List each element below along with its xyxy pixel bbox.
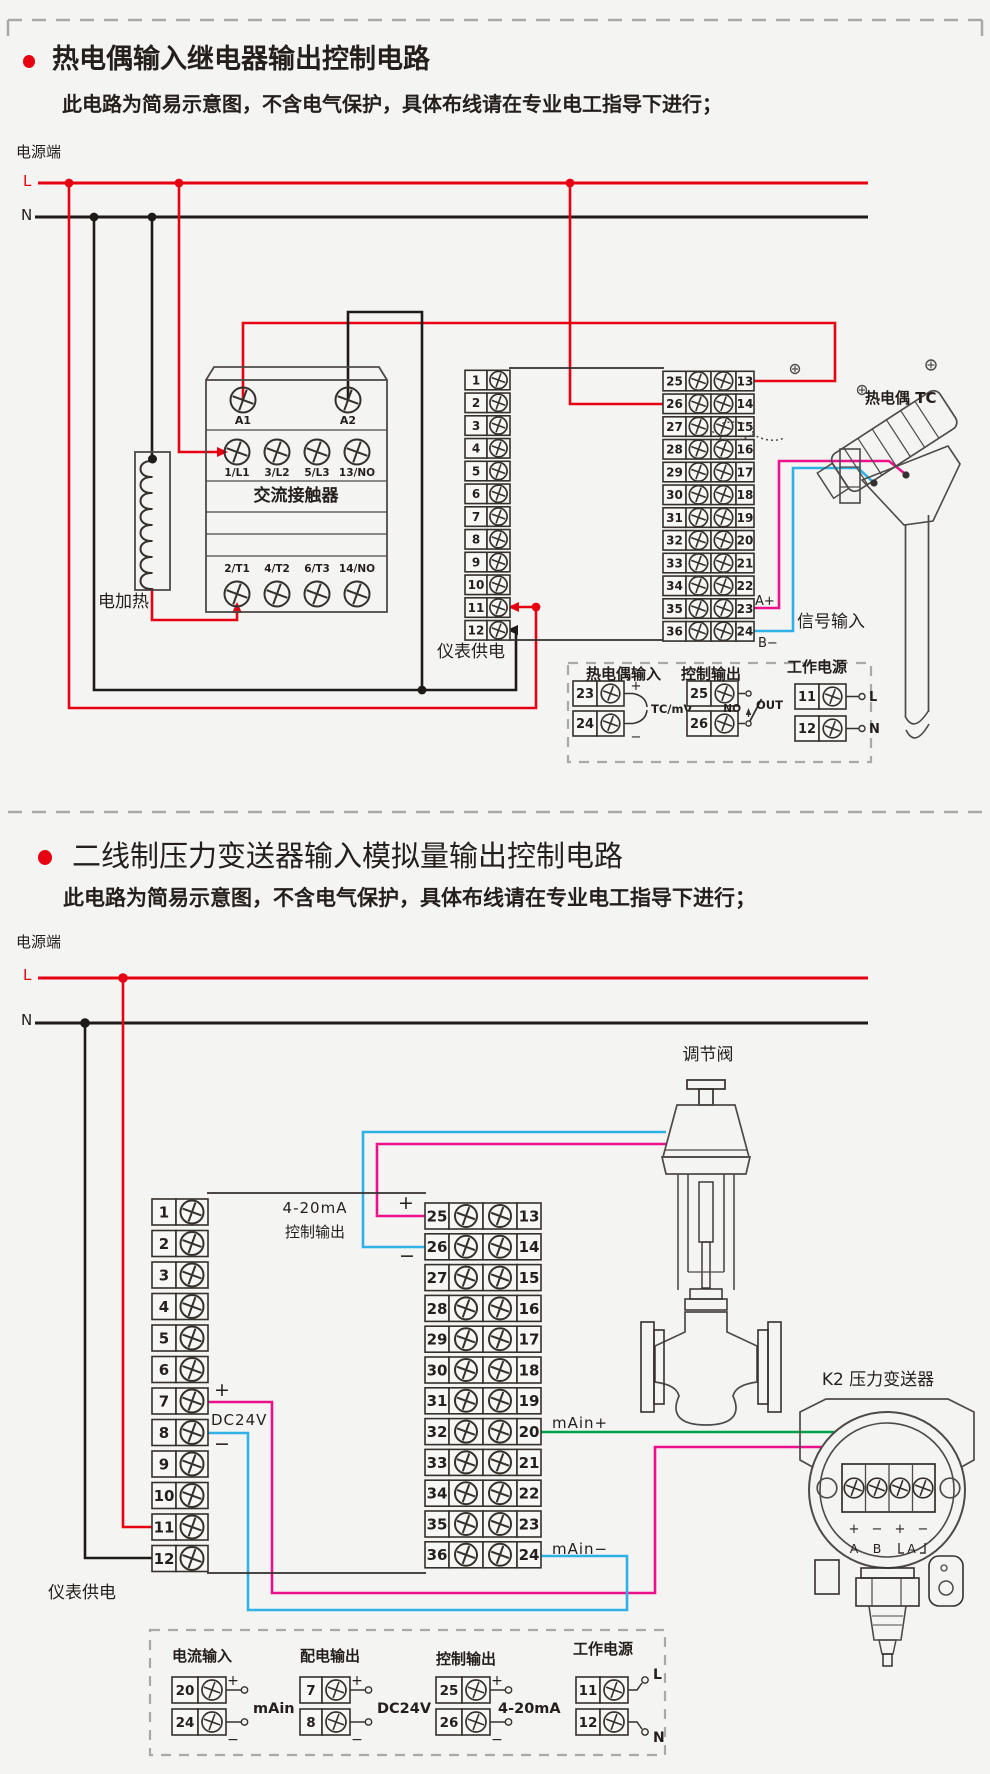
control-output-note1: 4-20mA: [283, 1200, 348, 1217]
svg-text:28: 28: [427, 1300, 448, 1318]
legend2-current-input-header: 电流输入: [172, 1648, 232, 1665]
svg-text:+: +: [227, 1673, 239, 1689]
svg-text:8: 8: [159, 1424, 169, 1442]
svg-text:N: N: [869, 722, 880, 737]
circuit1-meter-supply-label: 仪表供电: [437, 643, 505, 663]
svg-text:27: 27: [427, 1269, 448, 1287]
valve-label: 调节阀: [683, 1046, 734, 1066]
svg-text:5: 5: [472, 464, 480, 478]
svg-text:5/L3: 5/L3: [304, 467, 329, 479]
svg-text:19: 19: [737, 511, 754, 525]
svg-text:−: −: [631, 730, 642, 745]
svg-text:24: 24: [576, 717, 594, 732]
svg-text:13: 13: [737, 374, 754, 388]
minus-8-label: −: [214, 1434, 230, 1456]
circuit2-subtitle: 此电路为简易示意图，不含电气保护，具体布线请在专业电工指导下进行；: [63, 886, 756, 910]
svg-text:9: 9: [472, 555, 480, 569]
svg-text:23: 23: [576, 687, 594, 702]
circuit1-line-n-label: N: [21, 207, 32, 224]
circuit1-line-l-label: L: [23, 173, 31, 190]
b-minus-label: B−: [758, 637, 778, 652]
signal-input-label: 信号输入: [797, 613, 865, 633]
bullet-icon: [38, 850, 52, 865]
circuit2-line-l-label: L: [23, 967, 31, 984]
svg-text:26: 26: [666, 397, 683, 411]
svg-text:1: 1: [472, 373, 480, 387]
wiring-diagram-page: A1A21/L13/L25/L313/NO2/T14/T26/T314/NO12…: [0, 0, 990, 1774]
svg-text:17: 17: [519, 1331, 540, 1349]
svg-text:+: +: [351, 1673, 363, 1689]
svg-text:12: 12: [468, 624, 485, 638]
svg-text:7: 7: [472, 510, 480, 524]
svg-text:A1: A1: [235, 414, 251, 427]
circuit1-subtitle: 此电路为简易示意图，不含电气保护，具体布线请在专业电工指导下进行；: [62, 93, 722, 116]
svg-text:12: 12: [154, 1550, 175, 1568]
svg-text:NO: NO: [723, 703, 741, 715]
svg-text:−: −: [918, 1522, 929, 1537]
plus-25-label: +: [398, 1193, 414, 1215]
svg-text:−: −: [491, 1732, 503, 1748]
svg-text:29: 29: [427, 1331, 448, 1349]
svg-text:24: 24: [737, 625, 754, 639]
contactor-label: 交流接触器: [254, 487, 339, 507]
svg-text:3: 3: [472, 419, 480, 433]
svg-text:16: 16: [519, 1300, 540, 1318]
svg-text:3: 3: [159, 1266, 169, 1284]
svg-text:8: 8: [472, 533, 480, 547]
svg-text:−: −: [351, 1732, 363, 1748]
bullet-icon: [23, 55, 35, 68]
legend1-tc-input-header: 热电偶输入: [586, 666, 661, 683]
svg-text:20: 20: [737, 534, 754, 548]
svg-text:4: 4: [472, 442, 480, 456]
svg-text:7: 7: [306, 1683, 315, 1699]
svg-text:2/T1: 2/T1: [224, 563, 250, 575]
circuit1-title: 热电偶输入继电器输出控制电路: [52, 44, 430, 75]
circuit2-title: 二线制压力变送器输入模拟量输出控制电路: [72, 840, 623, 873]
svg-text:27: 27: [666, 420, 683, 434]
svg-text:18: 18: [737, 488, 754, 502]
svg-text:2: 2: [159, 1235, 169, 1253]
svg-text:8: 8: [306, 1715, 315, 1731]
svg-text:33: 33: [427, 1454, 448, 1472]
svg-text:35: 35: [427, 1515, 448, 1533]
control-output-note2: 控制输出: [285, 1224, 345, 1241]
svg-text:4/T2: 4/T2: [264, 563, 290, 575]
svg-text:+: +: [895, 1522, 906, 1537]
svg-text:9: 9: [159, 1455, 169, 1473]
circuit2-line-n-label: N: [21, 1012, 32, 1029]
svg-text:20: 20: [519, 1423, 540, 1441]
svg-text:−: −: [872, 1522, 883, 1537]
svg-text:15: 15: [519, 1269, 540, 1287]
svg-text:14: 14: [737, 397, 754, 411]
svg-text:32: 32: [427, 1423, 448, 1441]
svg-text:25: 25: [440, 1683, 459, 1699]
legend2-working-power-header: 工作电源: [573, 1641, 633, 1658]
svg-text:17: 17: [737, 465, 754, 479]
svg-text:25: 25: [666, 374, 683, 388]
svg-text:A: A: [850, 1541, 859, 1556]
legend1-working-power-header: 工作电源: [787, 659, 847, 676]
svg-text:L: L: [869, 690, 877, 705]
svg-text:34: 34: [666, 579, 683, 593]
svg-text:21: 21: [737, 556, 754, 570]
svg-text:+: +: [849, 1522, 860, 1537]
svg-text:35: 35: [666, 602, 683, 616]
main-plus-label: mAin+: [552, 1415, 608, 1432]
circuit2-meter-supply-label: 仪表供电: [48, 1584, 116, 1604]
svg-text:32: 32: [666, 534, 683, 548]
svg-text:20: 20: [176, 1683, 195, 1699]
svg-text:34: 34: [427, 1485, 448, 1503]
svg-text:22: 22: [519, 1485, 540, 1503]
legend2-dist-output-header: 配电输出: [300, 1648, 360, 1665]
svg-text:31: 31: [427, 1392, 448, 1410]
svg-text:28: 28: [666, 443, 683, 457]
svg-text:24: 24: [176, 1715, 195, 1731]
heater-label: 电加热: [98, 593, 149, 613]
svg-text:OUT: OUT: [756, 698, 783, 712]
svg-text:mAin: mAin: [253, 1701, 295, 1717]
legend2-control-output-header: 控制输出: [436, 1651, 496, 1668]
svg-text:B: B: [873, 1541, 882, 1556]
svg-text:5: 5: [159, 1329, 169, 1347]
svg-text:6: 6: [472, 487, 480, 501]
svg-text:1: 1: [159, 1203, 169, 1221]
svg-text:21: 21: [519, 1454, 540, 1472]
svg-text:+: +: [491, 1673, 503, 1689]
a-plus-label: A+: [755, 595, 775, 610]
svg-text:26: 26: [440, 1715, 459, 1731]
circuit2-power-terminal-label: 电源端: [16, 934, 61, 951]
svg-text:25: 25: [427, 1207, 448, 1225]
svg-text:6: 6: [159, 1361, 169, 1379]
svg-text:12: 12: [579, 1715, 598, 1731]
svg-text:12: 12: [798, 722, 816, 737]
circuit1-power-terminal-label: 电源端: [16, 144, 61, 161]
svg-text:7: 7: [159, 1392, 169, 1410]
svg-text:−: −: [227, 1732, 239, 1748]
transmitter-label: K2 压力变送器: [822, 1371, 934, 1391]
svg-text:24: 24: [519, 1546, 540, 1564]
svg-text:23: 23: [519, 1515, 540, 1533]
svg-text:33: 33: [666, 556, 683, 570]
svg-text:36: 36: [427, 1546, 448, 1564]
pressure-transmitter: +−+−ABA: [800, 1399, 974, 1666]
svg-text:13: 13: [519, 1207, 540, 1225]
svg-text:N: N: [653, 1730, 665, 1746]
svg-text:22: 22: [737, 579, 754, 593]
svg-text:2: 2: [472, 396, 480, 410]
svg-text:1/L1: 1/L1: [224, 467, 249, 479]
svg-text:11: 11: [468, 601, 485, 615]
dc24v-label: DC24V: [211, 1412, 267, 1429]
svg-text:19: 19: [519, 1392, 540, 1410]
heater: [135, 452, 170, 590]
svg-text:29: 29: [666, 465, 683, 479]
svg-text:3/L2: 3/L2: [264, 467, 289, 479]
svg-text:30: 30: [666, 488, 683, 502]
svg-text:25: 25: [690, 687, 708, 702]
svg-text:26: 26: [427, 1238, 448, 1256]
svg-text:36: 36: [666, 625, 683, 639]
svg-text:11: 11: [154, 1518, 175, 1536]
svg-text:13/NO: 13/NO: [339, 467, 375, 479]
svg-text:6/T3: 6/T3: [304, 563, 330, 575]
instrument1: 1234567891011122513261427152816291730183…: [465, 368, 754, 641]
svg-text:16: 16: [737, 443, 754, 457]
svg-text:10: 10: [468, 578, 485, 592]
svg-text:18: 18: [519, 1361, 540, 1379]
svg-text:4: 4: [159, 1298, 169, 1316]
minus-26-label: −: [399, 1246, 415, 1268]
svg-text:14/NO: 14/NO: [339, 563, 375, 575]
main-minus-label: mAin−: [552, 1541, 608, 1558]
svg-text:10: 10: [154, 1487, 175, 1505]
svg-text:A: A: [907, 1541, 916, 1556]
svg-text:31: 31: [666, 511, 683, 525]
svg-text:30: 30: [427, 1361, 448, 1379]
svg-text:DC24V: DC24V: [377, 1701, 432, 1717]
svg-text:L: L: [653, 1667, 662, 1683]
svg-text:4-20mA: 4-20mA: [498, 1701, 561, 1717]
instrument2: 1234567891011122513261427152816291730183…: [152, 1193, 541, 1573]
svg-text:26: 26: [690, 717, 708, 732]
thermocouple-label: 热电偶 TC: [865, 390, 936, 407]
plus-7-label: +: [214, 1380, 230, 1402]
svg-text:23: 23: [737, 602, 754, 616]
svg-text:11: 11: [579, 1683, 598, 1699]
legend1-control-output-header: 控制输出: [681, 666, 741, 683]
svg-text:14: 14: [519, 1238, 540, 1256]
svg-text:A2: A2: [340, 414, 356, 427]
svg-text:11: 11: [798, 690, 816, 705]
